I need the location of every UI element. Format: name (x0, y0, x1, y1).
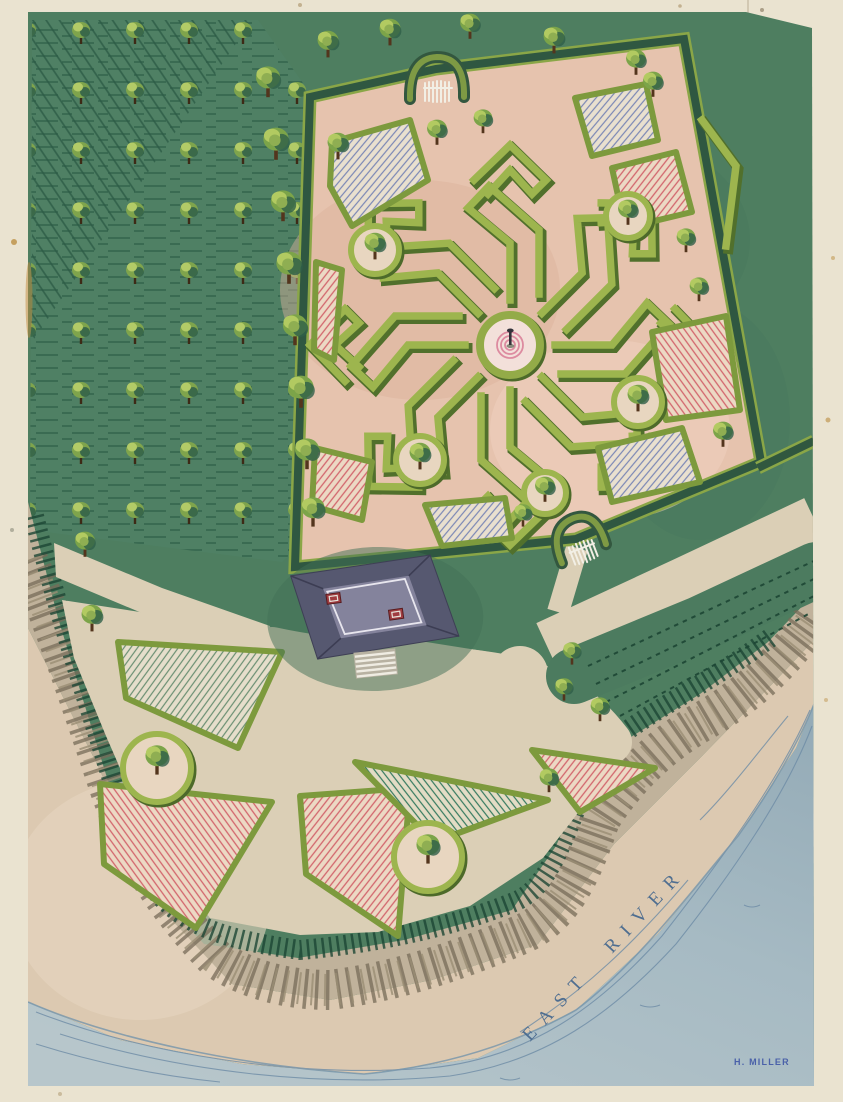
foxing-spot (824, 698, 828, 702)
foxing-spot (760, 8, 764, 12)
foxing-spot (298, 3, 302, 7)
artist-signature: H. MILLER (734, 1057, 790, 1067)
foxing-spot (11, 239, 17, 245)
painting-canvas: EAST RIVER H. MILLER (0, 0, 843, 1102)
foxing-spot (678, 4, 682, 8)
foxing-spot (26, 262, 33, 338)
foxing-spot (826, 418, 831, 423)
garden-plan-painting: EAST RIVER H. MILLER (0, 0, 843, 1102)
house-steps (353, 648, 397, 678)
foxing-spot (831, 256, 835, 260)
flower-bed (314, 262, 342, 360)
maze-center-ring (480, 315, 542, 377)
foxing-spot (10, 528, 14, 532)
foxing-spot (58, 1092, 62, 1096)
orchard-region (30, 20, 313, 562)
chimney (388, 608, 403, 620)
flower-bed (425, 498, 512, 546)
flower-bed (575, 84, 658, 156)
painted-scene: EAST RIVER H. MILLER (10, 12, 816, 1086)
chimney (326, 593, 341, 605)
orchard-trees (30, 20, 313, 562)
